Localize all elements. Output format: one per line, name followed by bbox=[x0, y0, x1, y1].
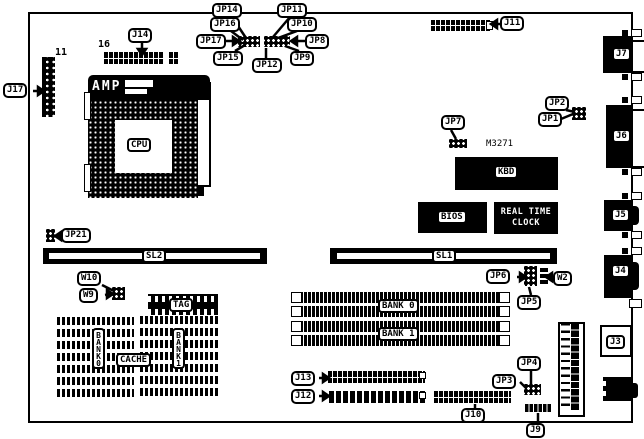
callout-j17: J17 bbox=[3, 83, 27, 98]
callout-leader-lines bbox=[0, 0, 644, 439]
callout-jp3: JP3 bbox=[492, 374, 516, 389]
callout-j13: J13 bbox=[291, 371, 315, 386]
callout-jp9: JP9 bbox=[290, 51, 314, 66]
callout-jp4: JP4 bbox=[517, 356, 541, 371]
callout-w10: W10 bbox=[77, 271, 101, 286]
callout-w9: W9 bbox=[79, 288, 98, 303]
callout-j10: J10 bbox=[461, 408, 485, 423]
callout-jp2: JP2 bbox=[545, 96, 569, 111]
callout-j9: J9 bbox=[526, 423, 545, 438]
callout-jp21: JP21 bbox=[61, 228, 91, 243]
callout-w2: W2 bbox=[553, 271, 572, 286]
callout-j14: J14 bbox=[128, 28, 152, 43]
callout-jp14: JP14 bbox=[212, 3, 242, 18]
callout-jp16: JP16 bbox=[210, 17, 240, 32]
callout-jp8: JP8 bbox=[305, 34, 329, 49]
callout-jp15: JP15 bbox=[213, 51, 243, 66]
callout-jp7: JP7 bbox=[441, 115, 465, 130]
motherboard-diagram: 11 J17 16 J14 AMP CPU JP14 JP11 JP16 JP1… bbox=[0, 0, 644, 439]
callout-j12: J12 bbox=[291, 389, 315, 404]
callout-jp5: JP5 bbox=[517, 295, 541, 310]
callout-jp17: JP17 bbox=[196, 34, 226, 49]
callout-jp10: JP10 bbox=[287, 17, 317, 32]
callout-j11: J11 bbox=[500, 16, 524, 31]
callout-jp12: JP12 bbox=[252, 58, 282, 73]
callout-jp1: JP1 bbox=[538, 112, 562, 127]
callout-jp11: JP11 bbox=[277, 3, 307, 18]
callout-jp6: JP6 bbox=[486, 269, 510, 284]
